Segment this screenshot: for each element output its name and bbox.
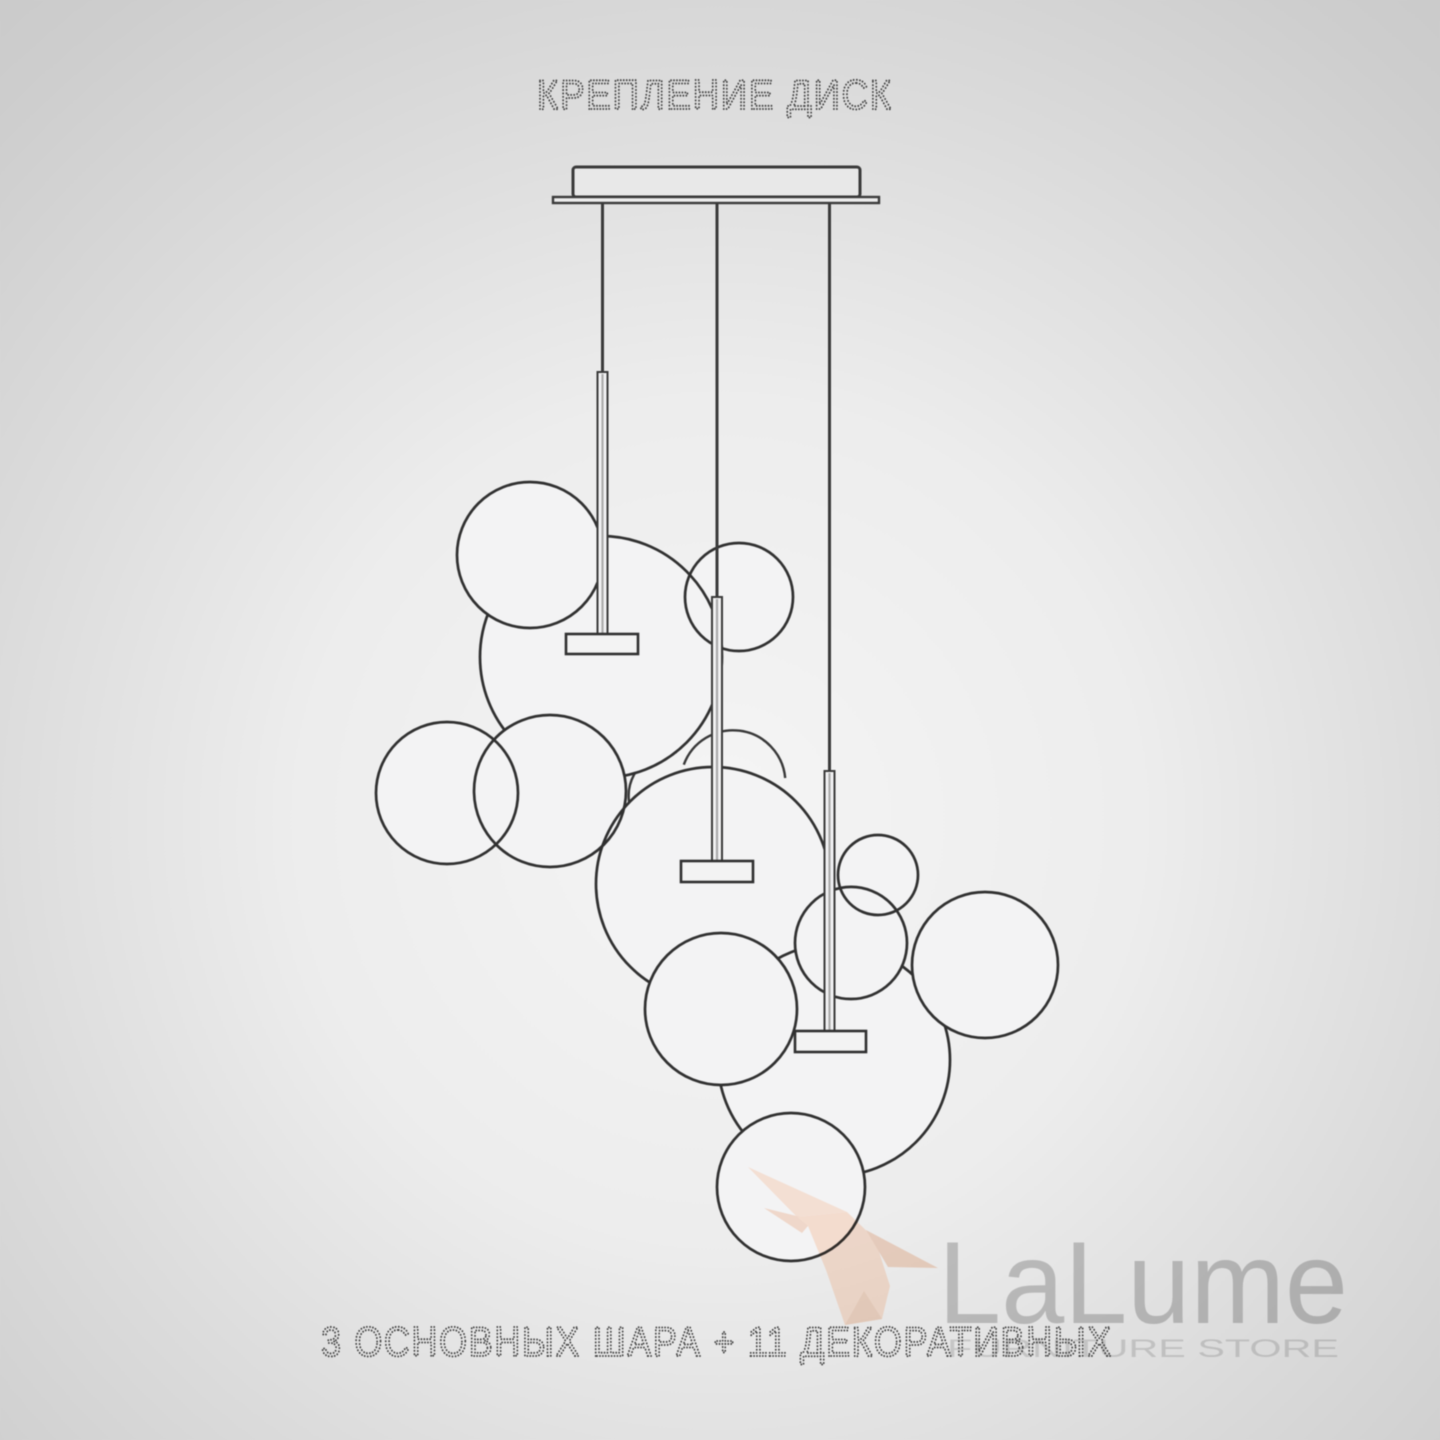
svg-text:3 ОСНОВНЫХ ШАРА + 11 ДЕКОРАТИВ: 3 ОСНОВНЫХ ШАРА + 11 ДЕКОРАТИВНЫХ [321,1318,1113,1365]
svg-text:КРЕПЛЕНИЕ ДИСК: КРЕПЛЕНИЕ ДИСК [537,71,893,118]
